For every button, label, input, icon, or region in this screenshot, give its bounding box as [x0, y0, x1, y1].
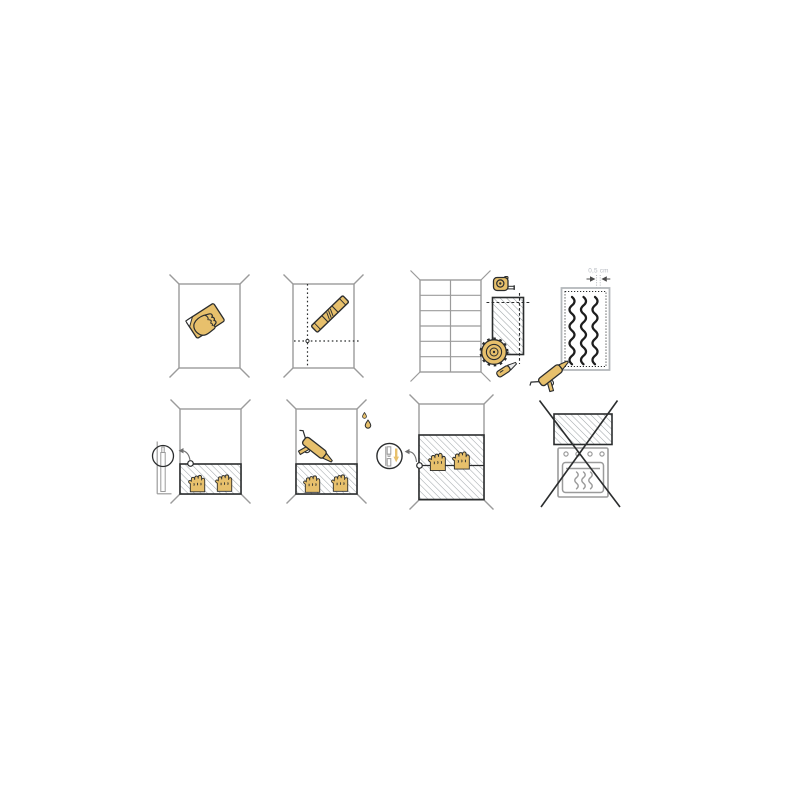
magnifier-joint-profile	[377, 443, 402, 468]
step-3-measure-and-cut	[411, 271, 531, 382]
gap-dimension-label: 0,5 cm	[588, 268, 608, 275]
oven-knob-icon	[600, 452, 604, 456]
oven-knob-icon	[588, 452, 592, 456]
corner-marker	[188, 461, 194, 467]
water-drops-icon	[363, 413, 371, 429]
detail-arrow-icon	[405, 449, 417, 462]
oven-knob-icon	[564, 452, 568, 456]
tape-measure-icon	[494, 277, 515, 291]
step-8-no-oven	[540, 401, 621, 508]
tiled-wall	[411, 271, 491, 382]
step-6-seal-top-edge	[287, 400, 371, 504]
instruction-sheet: 0,5 cm	[0, 0, 800, 800]
step-5-press-first-panel	[153, 400, 251, 504]
seam-marker	[417, 463, 423, 469]
guide-intersection-marker	[306, 339, 309, 342]
step-4-apply-adhesive: 0,5 cm	[529, 268, 611, 401]
step-2-mark-guidelines	[284, 275, 364, 378]
magnifier-side-profile	[153, 442, 174, 494]
dimension-arrow-left-icon	[590, 276, 595, 281]
instruction-illustration: 0,5 cm	[0, 0, 800, 800]
step-1-clean-wall	[170, 275, 250, 378]
panel-above-oven	[554, 414, 612, 445]
step-7-slide-second-panel	[377, 395, 494, 510]
panel-stack	[419, 435, 484, 500]
dimension-arrow-right-icon	[601, 276, 606, 281]
